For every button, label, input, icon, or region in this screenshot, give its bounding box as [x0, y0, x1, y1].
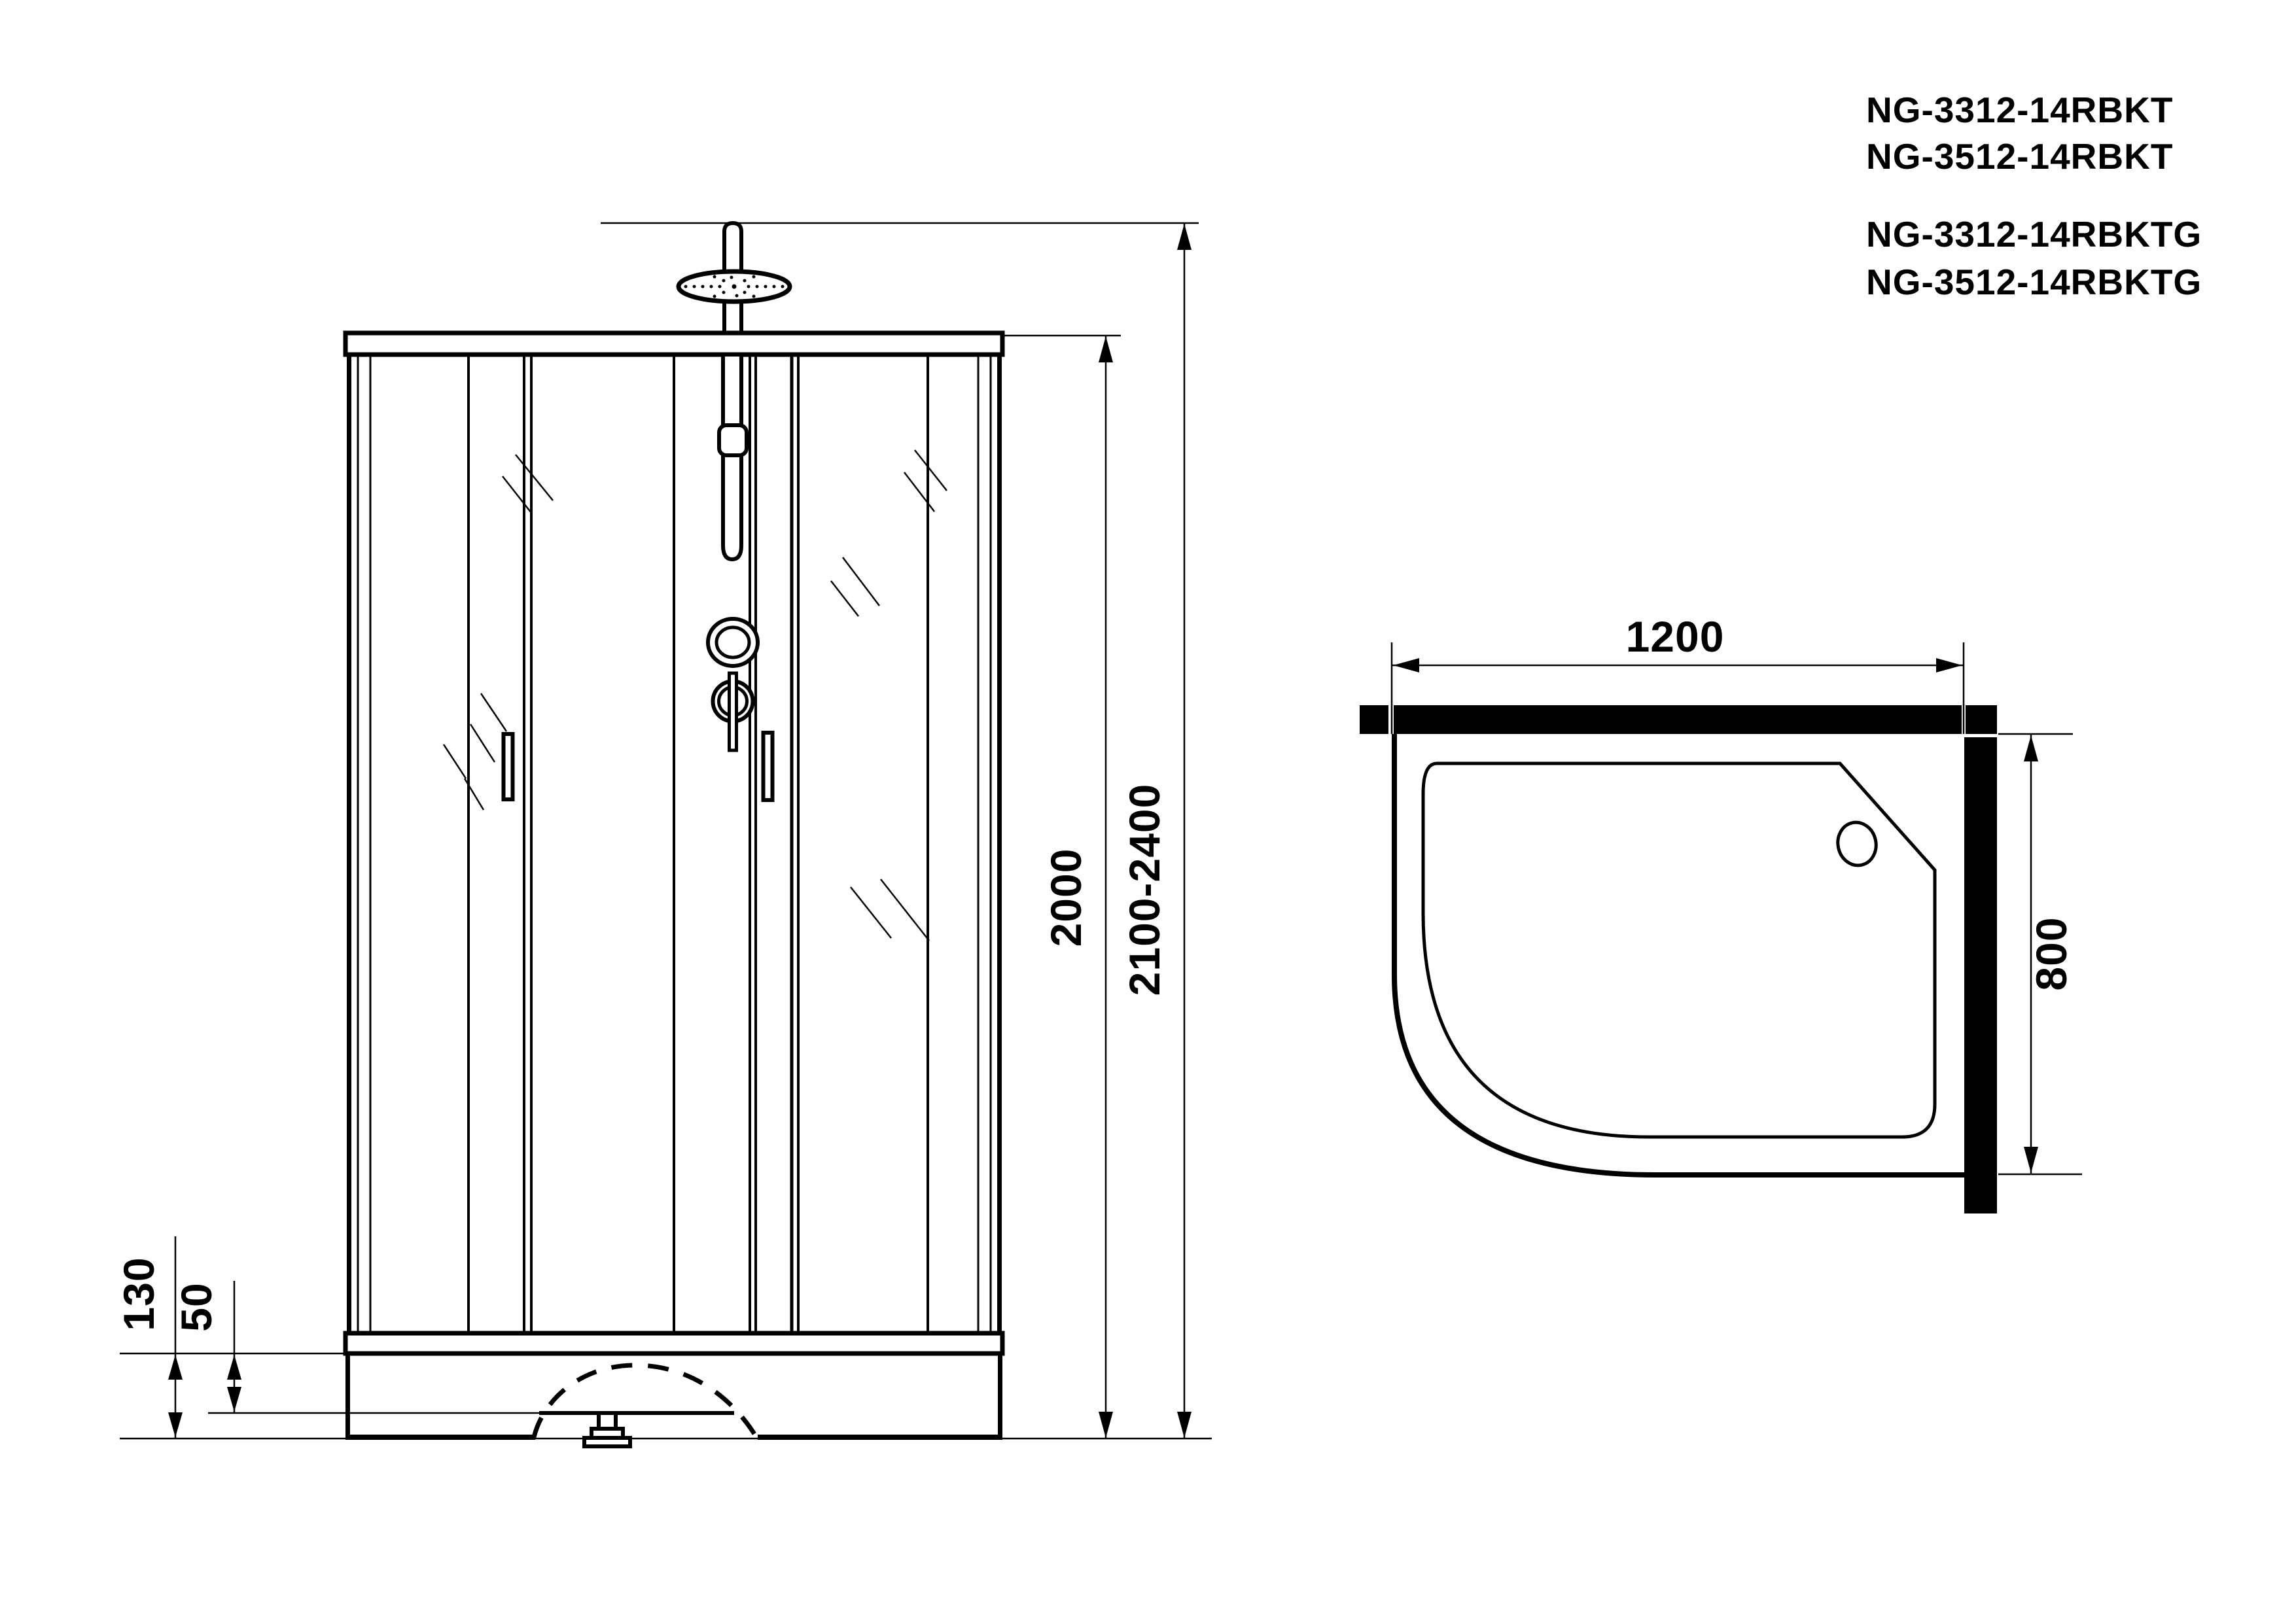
tray-inner-rim	[1423, 763, 1935, 1137]
shower-head-icon	[679, 223, 790, 338]
glass-hatch-marks	[444, 450, 947, 941]
model-line-4: NG-3512-14RBKTG	[1866, 262, 2202, 302]
technical-drawing: 130 50 2000 2100-2400	[0, 0, 2296, 1623]
door-handle-left	[504, 734, 513, 799]
height-dimensions: 2000 2100-2400	[1042, 223, 1192, 1439]
model-numbers: NG-3312-14RBKT NG-3512-14RBKT NG-3312-14…	[1866, 90, 2202, 302]
tray-dimensions: 130 50	[115, 1236, 345, 1439]
tray-plan	[1394, 734, 1964, 1175]
front-view: 130 50 2000 2100-2400	[115, 223, 1212, 1446]
tray-height-label: 130	[115, 1257, 163, 1331]
bottom-frame-bar	[345, 1333, 1002, 1353]
depth-dimension: 800	[1998, 734, 2082, 1174]
cabin-panels	[349, 355, 1000, 1333]
tray-outer-outline	[1394, 734, 1964, 1175]
shower-tray-front	[208, 1333, 1002, 1446]
diverter-lever	[730, 673, 737, 750]
drain-hole-icon	[1834, 819, 1880, 869]
drawing-page: 130 50 2000 2100-2400	[0, 0, 2296, 1623]
model-line-2: NG-3512-14RBKT	[1866, 136, 2173, 177]
depth-label: 800	[2027, 916, 2075, 990]
total-height-label: 2100-2400	[1120, 784, 1169, 996]
tray-depth-label: 50	[172, 1282, 221, 1331]
top-frame-bar	[345, 333, 1002, 355]
inner-height-label: 2000	[1042, 848, 1090, 947]
apron-access-arch	[534, 1365, 756, 1437]
plan-view: 1200 800	[1360, 612, 2082, 1213]
model-line-3: NG-3312-14RBKTG	[1866, 214, 2202, 254]
rail-slider-knob	[719, 425, 747, 455]
model-line-1: NG-3312-14RBKT	[1866, 90, 2173, 130]
width-label: 1200	[1626, 612, 1725, 661]
drain-trap-icon	[584, 1413, 630, 1446]
door-handle-right	[764, 733, 773, 800]
